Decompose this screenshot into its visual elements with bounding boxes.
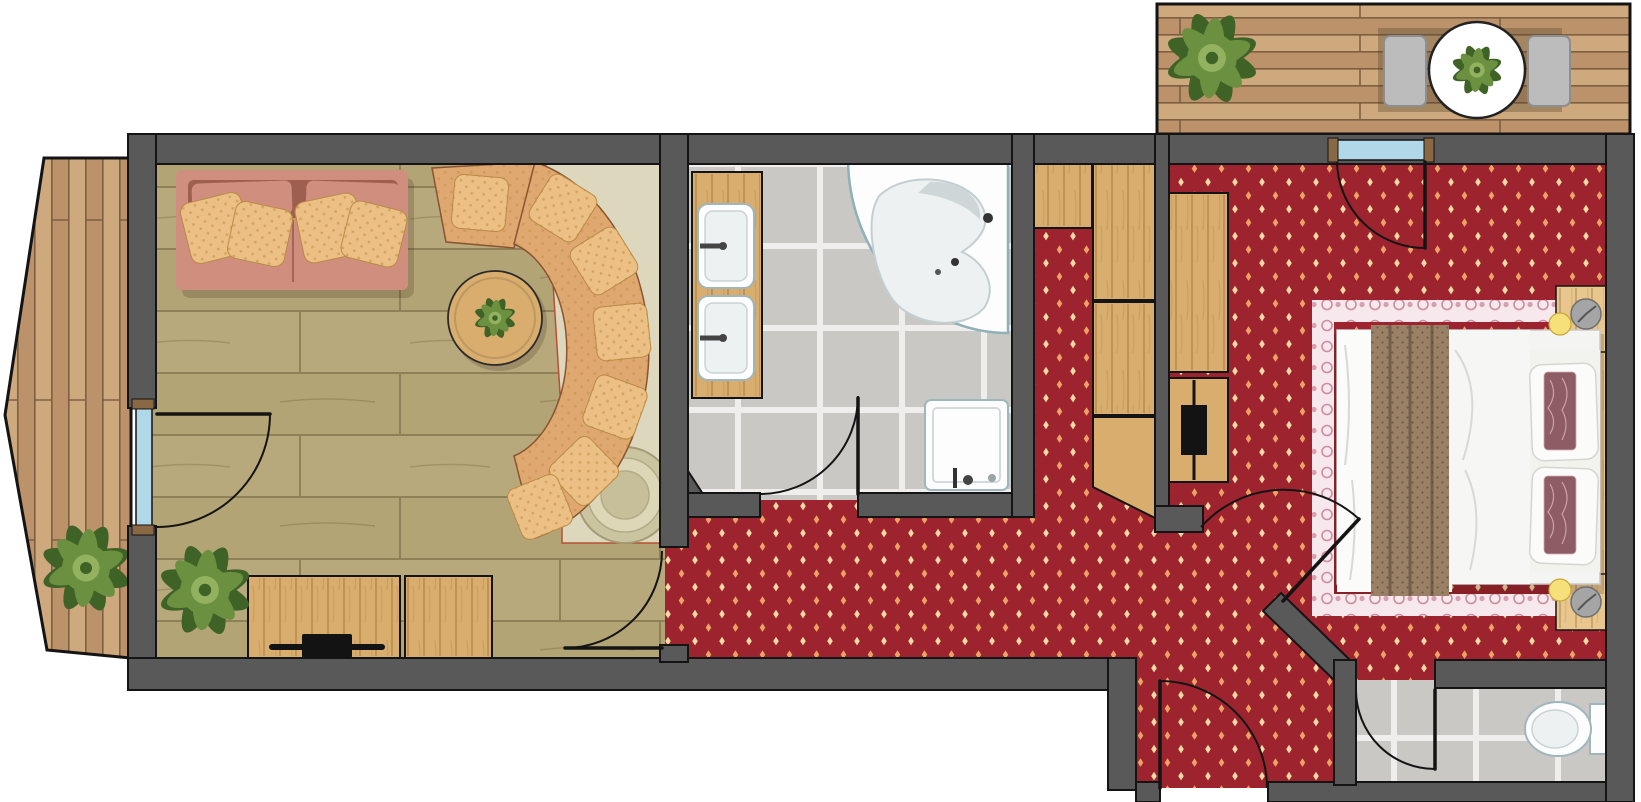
hall-wardrobe-middle-grain bbox=[1095, 304, 1153, 413]
wall-south-entry-right bbox=[1268, 782, 1634, 802]
wall-wc-west bbox=[1334, 660, 1356, 785]
wall-bath-south-left bbox=[688, 493, 760, 517]
sink-top-faucet-knob bbox=[719, 242, 727, 250]
sideboard-grain bbox=[407, 578, 490, 656]
wall-living-bath-stub bbox=[660, 645, 688, 662]
bench-pillow bbox=[592, 302, 651, 361]
door-post bbox=[1424, 138, 1434, 162]
tv bbox=[302, 634, 352, 658]
wall-living-bath-upper bbox=[660, 134, 688, 547]
accent-pillow-bottom bbox=[1544, 476, 1576, 554]
nightstand-lamp-bottom bbox=[1549, 579, 1571, 601]
shower-drain bbox=[988, 474, 996, 482]
shower-knob bbox=[963, 475, 973, 485]
accent-pillow-top bbox=[1544, 372, 1576, 450]
sink-bottom-faucet-knob bbox=[719, 334, 727, 342]
bedroom-balcony-door-glazing bbox=[1337, 140, 1425, 160]
terrace-chair-right bbox=[1528, 36, 1570, 106]
bedroom-wardrobe-grain bbox=[1170, 195, 1226, 370]
hall-cabinet-grain bbox=[1032, 164, 1090, 226]
double-bed bbox=[1334, 325, 1604, 596]
wall-west-lower bbox=[128, 526, 156, 662]
bathtub-faucet bbox=[983, 213, 993, 223]
wall-bath-south-right bbox=[858, 493, 1014, 517]
nightstand-lamp-top bbox=[1549, 313, 1571, 335]
rug-border-top bbox=[1312, 300, 1562, 322]
wall-east bbox=[1606, 134, 1634, 802]
floor-plan-canvas bbox=[0, 0, 1641, 802]
bathtub-drain bbox=[935, 269, 941, 275]
living-balcony-door-glazing bbox=[136, 408, 152, 526]
rug-border-bottom bbox=[1312, 594, 1562, 616]
door-post bbox=[132, 525, 154, 535]
wall-bedroom-door-stub bbox=[1155, 506, 1203, 532]
wall-hall-bedroom bbox=[1155, 134, 1169, 508]
wall-wc-north bbox=[1435, 660, 1606, 688]
bench-pillow bbox=[451, 174, 510, 233]
toilet-seat bbox=[1532, 710, 1578, 748]
wall-south-entry-left bbox=[1136, 782, 1160, 802]
wall-south-main bbox=[128, 658, 1136, 690]
terrace-top-right bbox=[1157, 4, 1630, 134]
wc bbox=[1525, 702, 1608, 756]
bed-duvet bbox=[1449, 330, 1530, 584]
wall-west-upper bbox=[128, 134, 156, 408]
sofa bbox=[176, 170, 414, 298]
sofa-pillow bbox=[226, 200, 295, 269]
door-post bbox=[132, 399, 154, 409]
terrace-chair-left bbox=[1384, 36, 1426, 106]
bathtub-knob bbox=[951, 258, 959, 266]
wall-south-jog bbox=[1108, 658, 1136, 790]
floor-plan-page bbox=[0, 0, 1641, 802]
door-post bbox=[1328, 138, 1338, 162]
hall-wardrobe-top-grain bbox=[1095, 162, 1153, 298]
wall-bath-east bbox=[1012, 134, 1034, 517]
